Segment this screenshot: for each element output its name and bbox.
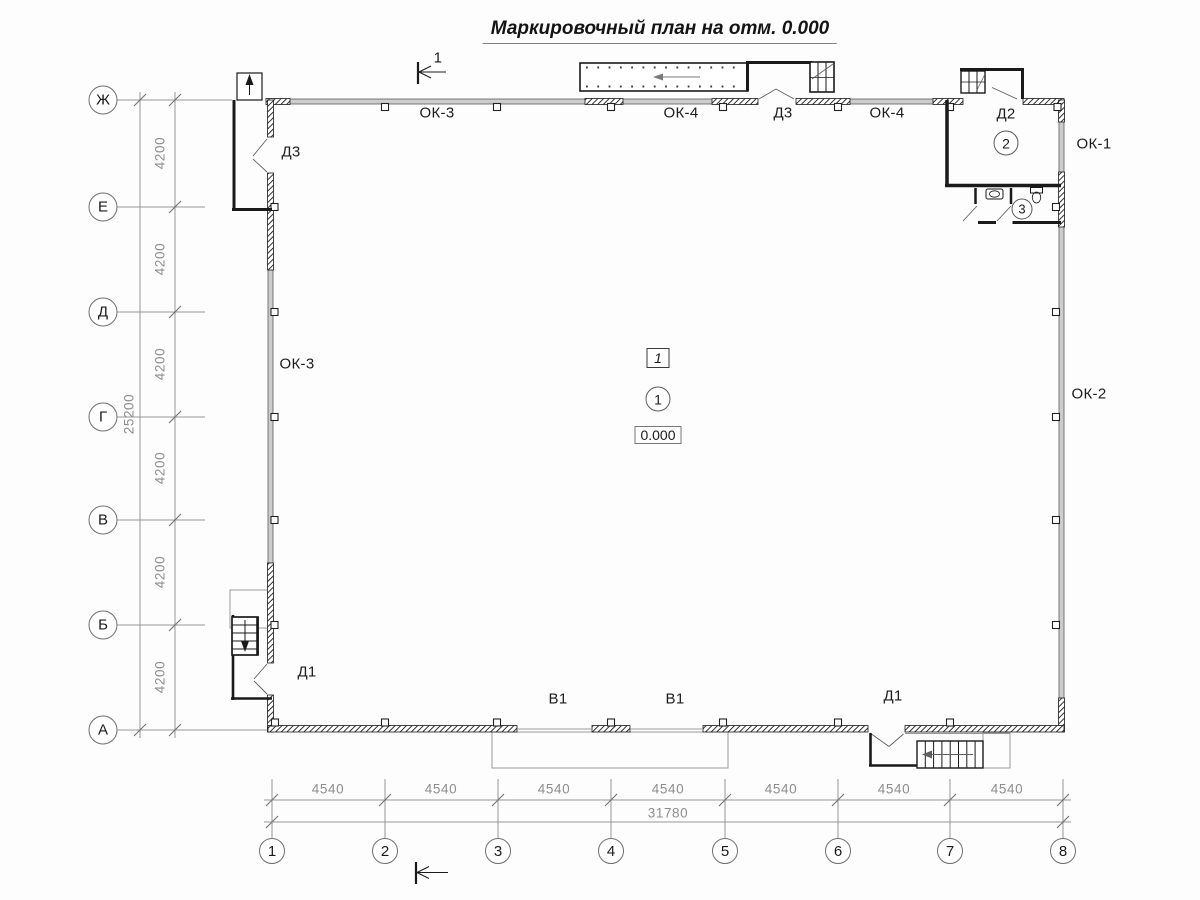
axis-row-b: Б (89, 611, 118, 640)
wall-openings (266, 98, 1024, 696)
dim-bay: 4200 (153, 137, 168, 169)
door-label-d2: Д2 (996, 106, 1015, 123)
dock-stair (810, 62, 834, 92)
door-d1-swing (254, 664, 267, 694)
window-label-ok2: ОК-2 (1072, 386, 1107, 403)
dim-bay: 4200 (153, 661, 168, 693)
loading-platform (492, 732, 728, 768)
axis-col-1: 1 (259, 838, 285, 864)
bottom-right-stair (869, 733, 983, 768)
axis-row-d: Д (89, 298, 118, 327)
door-d3-swing (253, 139, 267, 172)
axis-col-5: 5 (712, 838, 738, 864)
dimension-lines (140, 92, 1071, 822)
level-mark: 0.000 (635, 426, 682, 444)
axis-col-7: 7 (937, 838, 963, 864)
section-marks (416, 62, 448, 884)
window-label-ok4: ОК-4 (870, 105, 905, 122)
drawing-sheet: Маркировочный план на отм. 0.000 1 Ж Е Д… (0, 0, 1200, 900)
door-label-d1: Д1 (883, 688, 902, 705)
axis-row-a: А (89, 716, 118, 745)
window-bands (268, 99, 1064, 730)
outside-platforms (230, 590, 1010, 768)
window-label-ok4: ОК-4 (664, 105, 699, 122)
dim-total-vertical: 25200 (122, 394, 137, 435)
axis-col-6: 6 (825, 838, 851, 864)
room-number-3: 3 (1012, 199, 1033, 220)
wc-door-swings (963, 206, 1011, 221)
door-d2-swing (992, 88, 1017, 100)
door-label-d3: Д3 (773, 105, 792, 122)
dim-total-horizontal: 31780 (648, 806, 689, 821)
axis-col-4: 4 (598, 838, 624, 864)
section-mark-label: 1 (434, 50, 443, 67)
floor-plan-drawing (0, 0, 1200, 900)
dim-bay: 4540 (765, 782, 797, 797)
dim-bay: 4540 (538, 782, 570, 797)
dim-bay: 4200 (153, 243, 168, 275)
right-stair-landing (983, 733, 1010, 768)
dim-bay: 4540 (991, 782, 1023, 797)
dim-bay: 4540 (425, 782, 457, 797)
axis-row-g: Г (89, 403, 118, 432)
column-marks (271, 104, 1061, 727)
room-number-1: 1 (646, 387, 671, 412)
axis-row-zh: Ж (89, 86, 118, 115)
door-d1-right-swing (870, 733, 904, 747)
window-label-ok1: ОК-1 (1077, 136, 1112, 153)
zone-number-box: 1 (647, 348, 670, 368)
drawing-title: Маркировочный план на отм. 0.000 (483, 18, 837, 44)
bottom-wall (268, 726, 517, 733)
window-label-ok3: ОК-3 (420, 105, 455, 122)
axis-col-2: 2 (372, 838, 398, 864)
gate-label-v1: В1 (549, 691, 568, 708)
axis-col-3: 3 (485, 838, 511, 864)
loading-dock (580, 61, 834, 99)
door-label-d3: Д3 (281, 144, 300, 161)
dim-bay: 4540 (878, 782, 910, 797)
axis-row-v: В (89, 506, 118, 535)
dim-bay: 4540 (312, 782, 344, 797)
gate-label-v1: В1 (666, 691, 685, 708)
window-label-ok3: ОК-3 (280, 356, 315, 373)
door-label-d1: Д1 (297, 664, 316, 681)
dim-bay: 4200 (153, 348, 168, 380)
axis-col-8: 8 (1050, 838, 1076, 864)
dim-bay: 4200 (153, 452, 168, 484)
masonry-walls (266, 99, 1065, 733)
dim-bay: 4200 (153, 556, 168, 588)
room-number-2: 2 (994, 131, 1019, 156)
dim-bay: 4540 (652, 782, 684, 797)
top-right-porch (960, 68, 1024, 99)
axis-row-e: Е (89, 193, 118, 222)
